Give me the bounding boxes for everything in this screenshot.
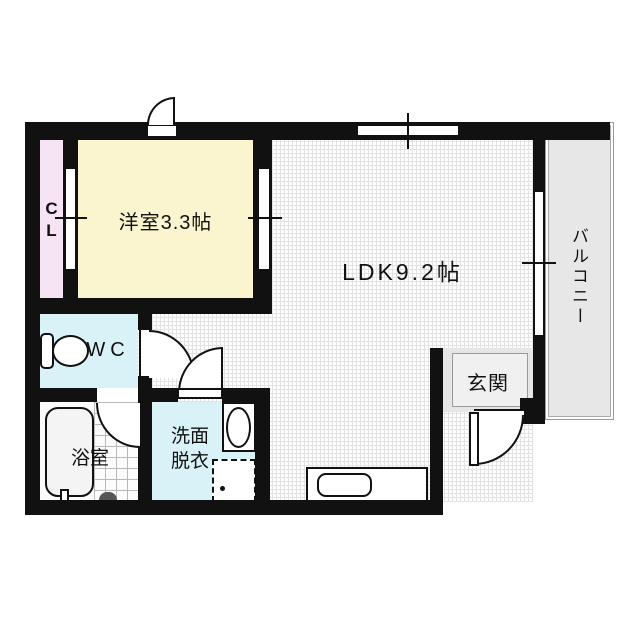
wall-washroom-top-left (138, 388, 178, 402)
bath-door-threshold (97, 388, 138, 402)
closet-label: C L (40, 198, 63, 242)
western-door-tick (248, 217, 282, 219)
washbasin-bowl-icon (226, 407, 251, 448)
western-ldk-sliding-door (257, 167, 271, 271)
wall-top (25, 122, 610, 140)
bath-label: 浴室 (55, 443, 125, 470)
wall-left (25, 122, 40, 515)
entrance-label: 玄関 (443, 367, 533, 396)
kitchen-sink-icon (317, 473, 372, 497)
washroom-label: 洗面 脱衣 (157, 424, 223, 474)
wall-bath-top (25, 388, 97, 402)
western-top-door-arc (147, 97, 175, 125)
balcony-label: バルコニー (566, 212, 591, 342)
entrance-door-leaf (469, 412, 479, 466)
wc-label: WC (78, 339, 138, 362)
wall-entrance-left (430, 348, 443, 515)
wall-washroom-right (255, 388, 270, 502)
western-top-door-threshold (146, 124, 178, 138)
wall-bath-washroom-divider (138, 388, 152, 502)
western-room-label: 洋室3.3帖 (78, 206, 253, 235)
washer-pan-drain-dot (220, 486, 225, 491)
ldk-label: LDK9.2帖 (272, 253, 533, 287)
wall-bottom (25, 500, 443, 515)
window-top-center-tick (407, 113, 409, 149)
washroom-door-leaf (177, 388, 223, 399)
floor-plan: 洋室3.3帖 LDK9.2帖 C L WC 浴室 洗面 脱衣 玄関 バルコニー (0, 0, 640, 640)
closet-sliding-door (64, 167, 77, 271)
wall-hall-top (25, 298, 272, 314)
